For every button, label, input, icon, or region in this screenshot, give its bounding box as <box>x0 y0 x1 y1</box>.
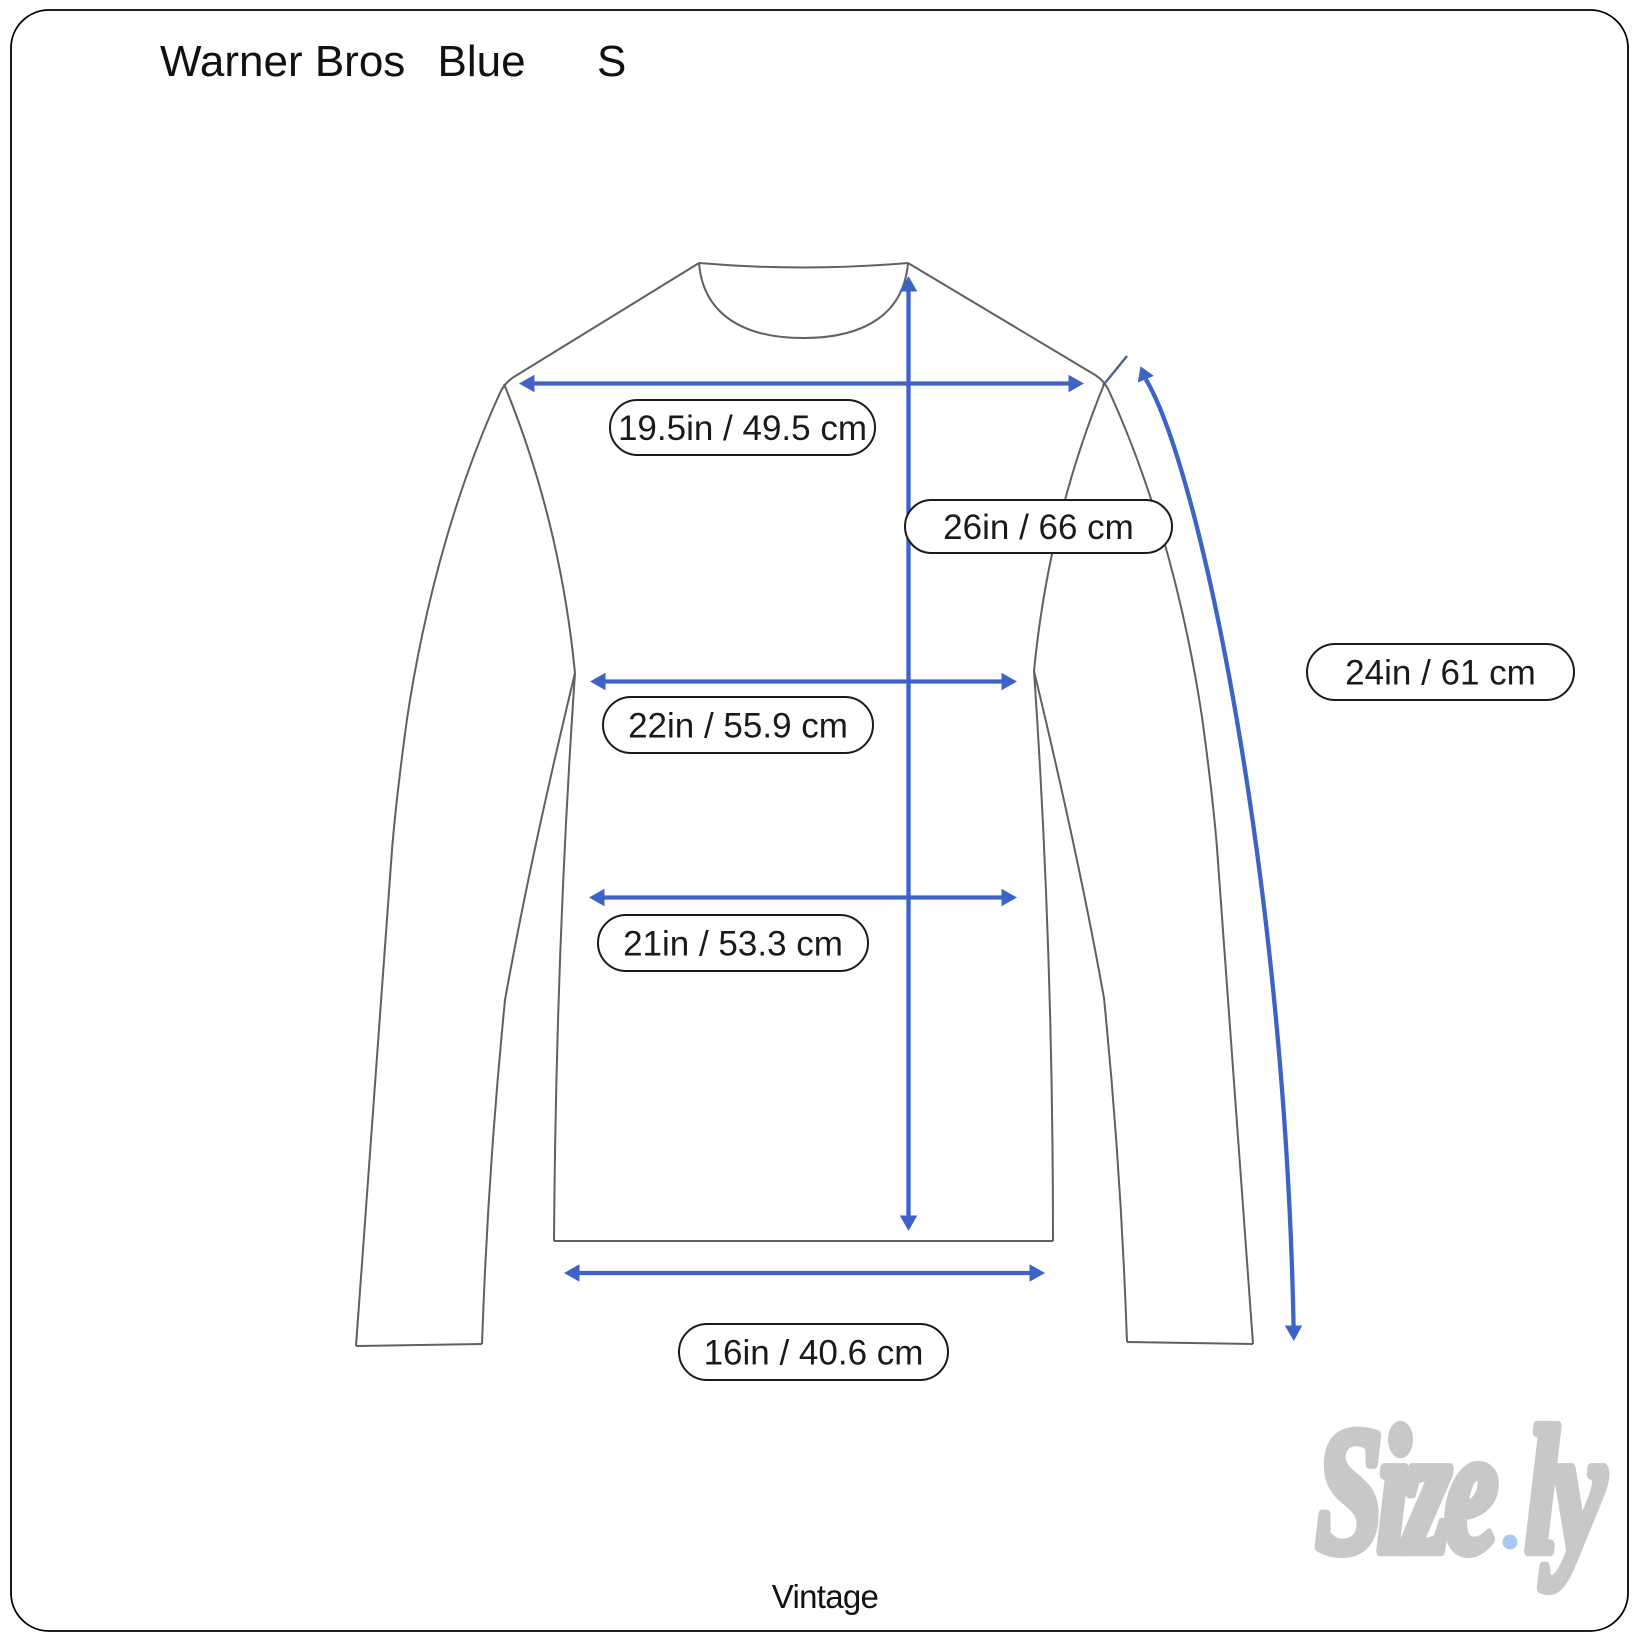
svg-text:S: S <box>597 37 626 86</box>
svg-text:21in / 53.3 cm: 21in / 53.3 cm <box>623 925 843 964</box>
svg-text:26in / 66 cm: 26in / 66 cm <box>943 508 1134 547</box>
svg-text:22in / 55.9 cm: 22in / 55.9 cm <box>628 707 848 746</box>
svg-text:Warner Bros: Warner Bros <box>160 37 405 86</box>
svg-text:16in / 40.6 cm: 16in / 40.6 cm <box>704 1334 924 1373</box>
svg-text:24in / 61 cm: 24in / 61 cm <box>1345 654 1536 693</box>
svg-text:Vintage: Vintage <box>772 1578 878 1615</box>
svg-text:ly: ly <box>1525 1392 1606 1591</box>
svg-text:19.5in / 49.5 cm: 19.5in / 49.5 cm <box>618 409 867 448</box>
svg-text:Size: Size <box>1316 1392 1496 1591</box>
svg-text:Blue: Blue <box>438 37 526 86</box>
